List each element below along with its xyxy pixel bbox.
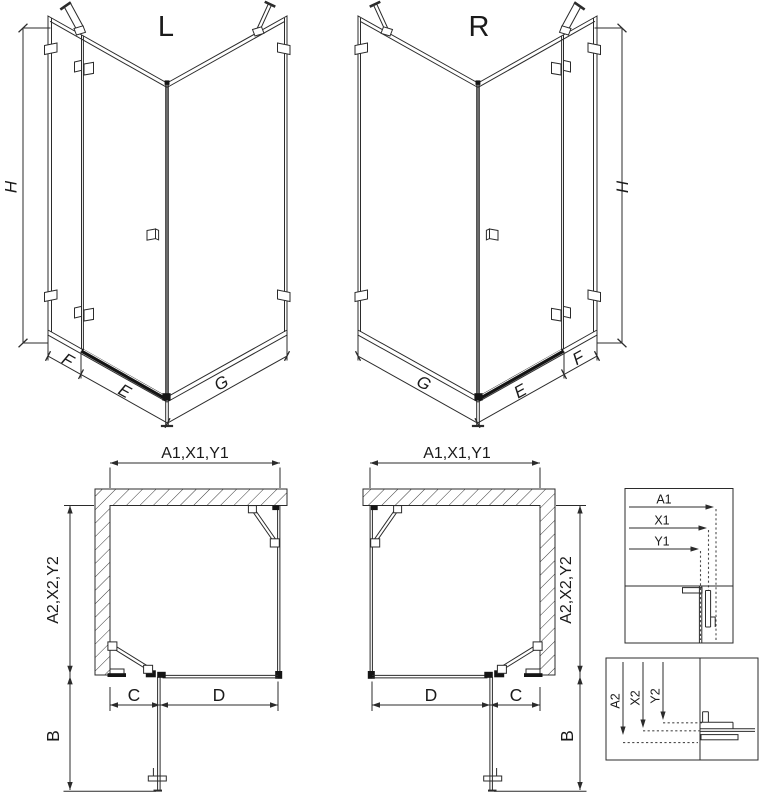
- plan-left-dim-b: B: [43, 730, 63, 742]
- detail-box-frame: [606, 658, 758, 760]
- plan-left-dim-d: D: [213, 685, 226, 705]
- plan-right-dim-b: B: [557, 730, 577, 742]
- wall-hatch-left-plan: [95, 489, 287, 675]
- detail-label-a1: A1: [656, 493, 671, 507]
- plan-left-dim-top: A1,X1,Y1: [161, 445, 229, 462]
- dim-label-e-left: E: [115, 380, 135, 402]
- wall-profile-section: [700, 712, 733, 729]
- dim-label-f-left: F: [59, 349, 79, 371]
- dim-label-g-left: G: [211, 372, 232, 395]
- detail-label-y1: Y1: [654, 535, 669, 549]
- glass-section: [700, 729, 755, 732]
- dim-label-h-left: H: [2, 180, 21, 193]
- iso-right-title: R: [469, 11, 490, 43]
- detail-box-depth-section: [606, 658, 758, 760]
- wall-hatch-right-plan: [363, 489, 555, 675]
- plan-left-dim-c: C: [128, 685, 141, 705]
- dim-label-g-right: G: [413, 372, 434, 395]
- detail-box-width-section: [625, 489, 733, 644]
- reference-dashed-lines: [623, 723, 702, 743]
- iso-left-title: L: [158, 11, 174, 43]
- detail-label-a2: A2: [609, 693, 623, 708]
- plan-right-dim-side: A2,X2,Y2: [558, 556, 575, 624]
- plan-right-dim-d: D: [425, 685, 438, 705]
- detail-label-y2: Y2: [649, 688, 663, 703]
- bracket-section: [701, 735, 738, 740]
- detail-box-frame: [625, 489, 733, 644]
- dim-label-f-right: F: [569, 347, 589, 369]
- plan-left-dim-side: A2,X2,Y2: [45, 556, 62, 624]
- shower-enclosure-technical-drawing: L H F E G R H G E F A1,X1,Y1 A2,X2,Y2 C …: [0, 0, 768, 800]
- detail-label-x1: X1: [654, 514, 669, 528]
- dim-label-h-right: H: [613, 180, 632, 193]
- plan-right-dim-c: C: [510, 685, 523, 705]
- detail-label-x2: X2: [629, 690, 643, 705]
- plan-right-dim-top: A1,X1,Y1: [423, 445, 491, 462]
- dim-label-e-right: E: [511, 380, 531, 402]
- wall-profile-section: [706, 591, 716, 628]
